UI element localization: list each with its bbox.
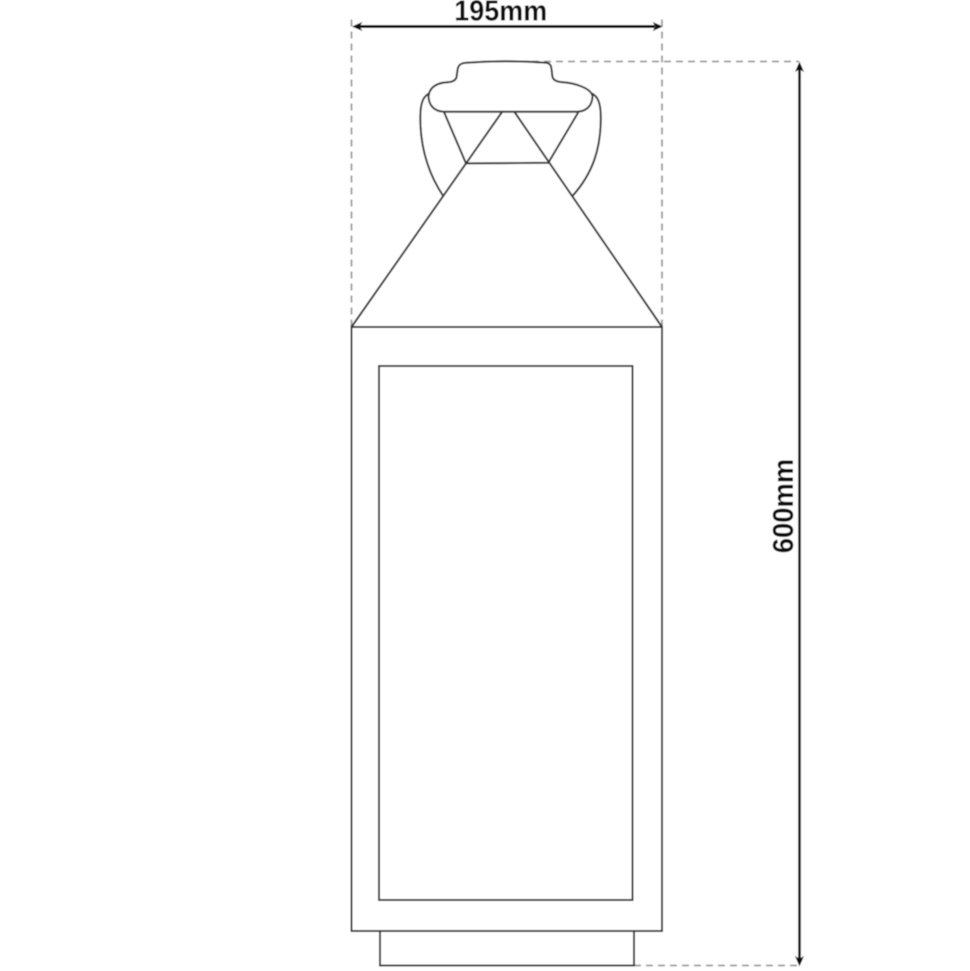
svg-text:195mm: 195mm bbox=[454, 0, 547, 28]
svg-text:600mm: 600mm bbox=[768, 459, 800, 554]
